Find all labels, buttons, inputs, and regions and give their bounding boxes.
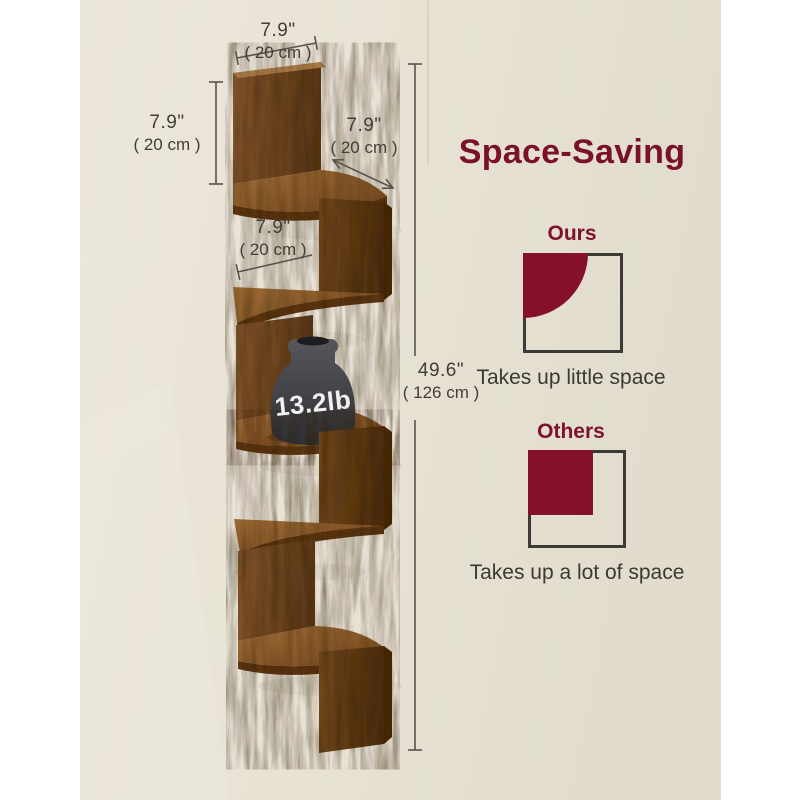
ours-label: Ours	[547, 222, 596, 246]
product-infographic: 7.9" ( 20 cm ) 7.9" ( 20 cm ) 7.9" ( 20 …	[0, 0, 800, 800]
dim-right-depth-inches: 7.9"	[330, 115, 397, 137]
dim-right-depth-cm: ( 20 cm )	[330, 138, 397, 158]
others-caption: Takes up a lot of space	[470, 561, 685, 585]
dim-left-height-inches: 7.9"	[133, 112, 200, 134]
dim-total-height: 49.6" ( 126 cm )	[403, 360, 480, 402]
dim-left-height-cm: ( 20 cm )	[133, 135, 200, 155]
dim-top-width-cm: ( 20 cm )	[244, 43, 311, 63]
filled-square-in-square-icon	[528, 450, 626, 548]
others-label: Others	[537, 420, 605, 444]
dim-middle-width: 7.9" ( 20 cm )	[239, 217, 306, 259]
filled-square-fill	[528, 450, 593, 515]
quarter-circle-in-square-icon	[523, 253, 623, 353]
dim-total-height-inches: 49.6"	[403, 360, 480, 382]
dim-total-height-cm: ( 126 cm )	[403, 383, 480, 403]
dim-right-depth: 7.9" ( 20 cm )	[330, 115, 397, 157]
dim-top-width-inches: 7.9"	[244, 20, 311, 42]
dim-middle-width-cm: ( 20 cm )	[239, 240, 306, 260]
info-panel-title: Space-Saving	[459, 133, 686, 172]
dim-left-height: 7.9" ( 20 cm )	[133, 112, 200, 154]
quarter-circle-fill	[523, 253, 588, 318]
dim-top-width: 7.9" ( 20 cm )	[244, 20, 311, 62]
ours-caption: Takes up little space	[476, 366, 665, 390]
dim-middle-width-inches: 7.9"	[239, 217, 306, 239]
